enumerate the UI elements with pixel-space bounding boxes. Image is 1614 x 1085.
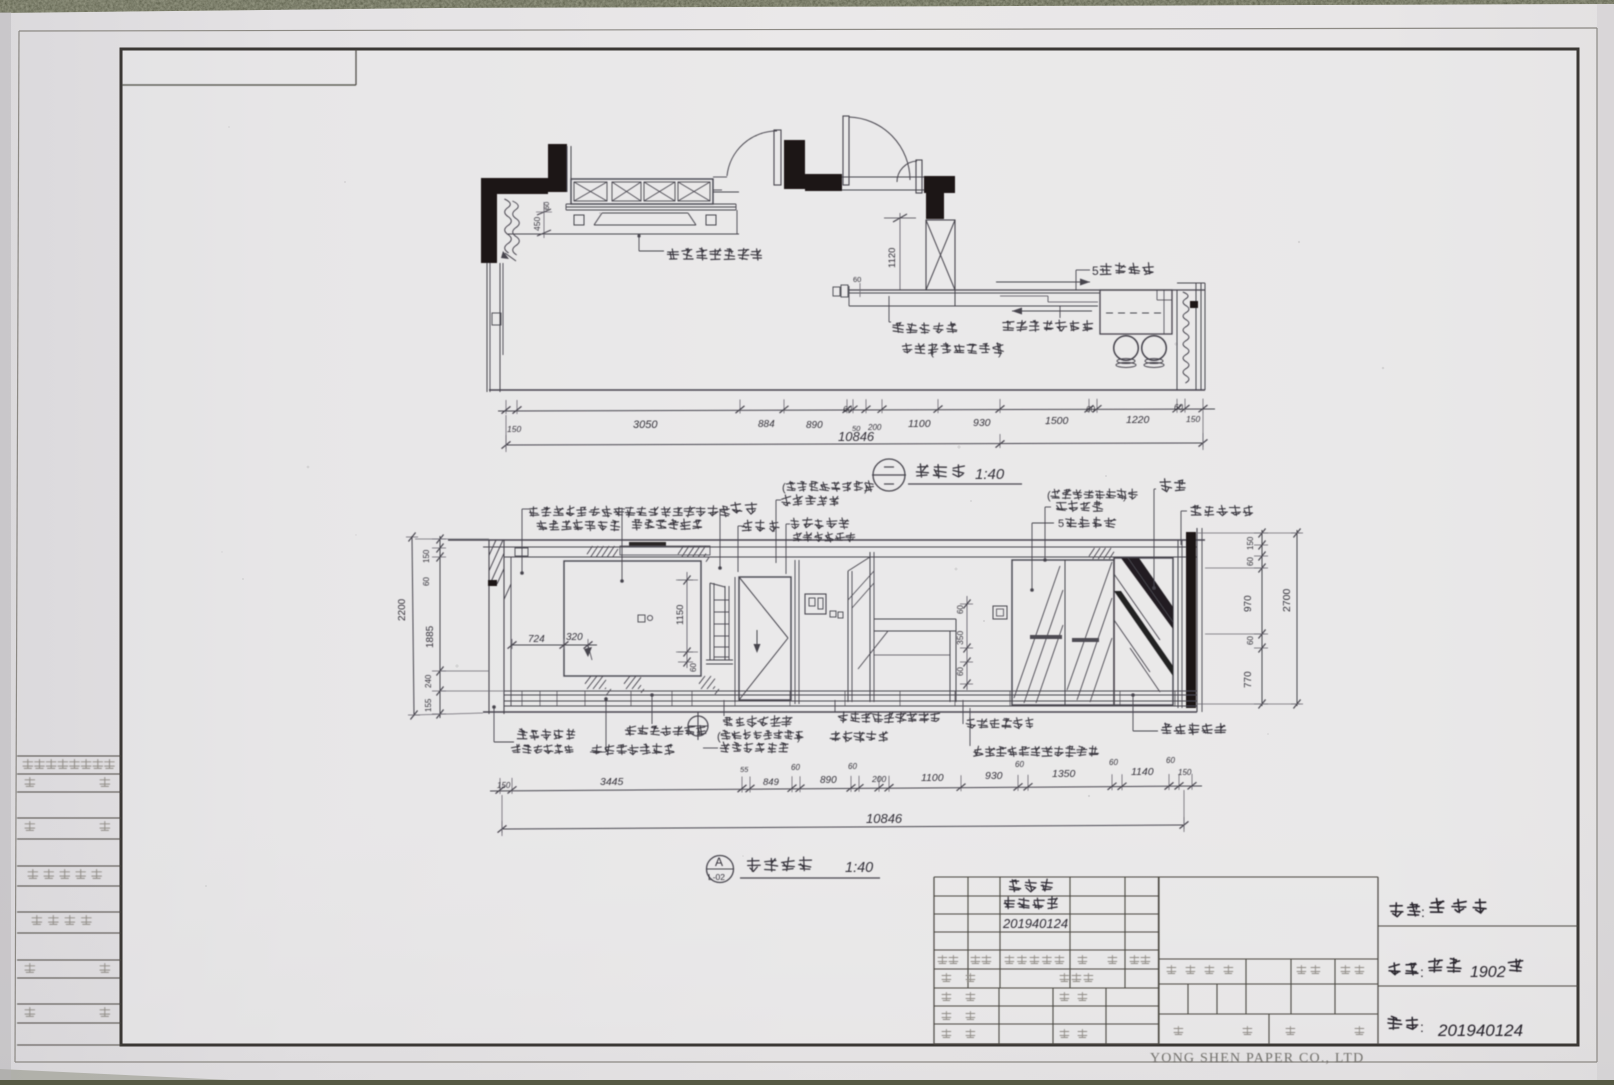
svg-text:970: 970 <box>1243 595 1254 612</box>
svg-text:320: 320 <box>566 632 583 643</box>
svg-text:): ) <box>998 344 1002 358</box>
svg-text:60: 60 <box>843 405 852 414</box>
svg-text:(: ( <box>717 731 721 743</box>
svg-text:450: 450 <box>532 217 542 231</box>
svg-text:5: 5 <box>1058 518 1064 530</box>
svg-text:150: 150 <box>1186 414 1200 424</box>
svg-text:150: 150 <box>422 549 431 563</box>
svg-text:150: 150 <box>507 424 521 434</box>
svg-text:1100: 1100 <box>921 772 944 784</box>
svg-text:60: 60 <box>853 275 861 284</box>
svg-text:): ) <box>797 731 801 743</box>
svg-text:60: 60 <box>1166 756 1175 765</box>
svg-text:1902: 1902 <box>1470 964 1506 981</box>
svg-text:60: 60 <box>542 202 551 210</box>
svg-text:201940124: 201940124 <box>1002 916 1068 931</box>
svg-text:1:40: 1:40 <box>845 860 873 876</box>
svg-text:930: 930 <box>985 770 1003 782</box>
svg-text:60: 60 <box>1246 636 1255 645</box>
svg-text:10846: 10846 <box>866 811 903 826</box>
svg-text:201940124: 201940124 <box>1437 1021 1523 1040</box>
svg-text:60: 60 <box>848 762 857 771</box>
svg-text:350: 350 <box>955 631 965 645</box>
svg-text:1220: 1220 <box>1126 414 1150 426</box>
svg-text:): ) <box>1123 490 1127 502</box>
svg-text:930: 930 <box>973 417 991 429</box>
svg-text:890: 890 <box>820 775 837 786</box>
svg-text:55: 55 <box>740 765 749 774</box>
svg-text:240: 240 <box>424 674 433 688</box>
svg-text:60: 60 <box>956 605 965 614</box>
svg-text:): ) <box>864 482 868 494</box>
svg-text:150: 150 <box>497 781 511 790</box>
svg-text:60: 60 <box>1174 403 1183 412</box>
svg-text:60: 60 <box>422 577 431 586</box>
svg-text::: : <box>1420 1019 1424 1035</box>
svg-text:60: 60 <box>791 763 800 772</box>
svg-text:(: ( <box>782 482 786 494</box>
svg-text:L-02: L-02 <box>708 872 725 882</box>
svg-text:(: ( <box>930 344 934 358</box>
svg-text:60: 60 <box>689 663 698 672</box>
svg-text:(: ( <box>1047 490 1051 502</box>
svg-text:YONG SHEN PAPER CO., LTD: YONG SHEN PAPER CO., LTD <box>1150 1051 1364 1066</box>
svg-text:1350: 1350 <box>1052 768 1076 780</box>
svg-text:A: A <box>715 855 723 869</box>
svg-text:3050: 3050 <box>633 419 658 431</box>
svg-text:1140: 1140 <box>1131 766 1154 778</box>
svg-text:890: 890 <box>806 420 823 431</box>
svg-text:1500: 1500 <box>1045 415 1069 427</box>
svg-text::: : <box>1421 904 1425 920</box>
svg-text:60: 60 <box>1086 405 1095 414</box>
svg-text:1150: 1150 <box>675 605 686 625</box>
svg-text:60: 60 <box>1109 758 1118 767</box>
svg-text:10846: 10846 <box>838 429 875 444</box>
svg-text:884: 884 <box>758 419 775 430</box>
svg-text:3445: 3445 <box>600 776 624 788</box>
svg-text:1885: 1885 <box>425 625 436 648</box>
svg-text:200: 200 <box>871 774 886 784</box>
svg-text::: : <box>1420 964 1424 980</box>
svg-text:1120: 1120 <box>887 248 898 268</box>
svg-text:155: 155 <box>424 698 433 712</box>
svg-text:5: 5 <box>1092 264 1099 278</box>
svg-text:60: 60 <box>1015 760 1024 769</box>
svg-text:724: 724 <box>528 634 545 645</box>
svg-text:849: 849 <box>763 777 780 788</box>
svg-text:1100: 1100 <box>908 418 931 430</box>
svg-text:150: 150 <box>1178 768 1192 777</box>
svg-text:60: 60 <box>1246 557 1255 566</box>
svg-text:770: 770 <box>1243 671 1254 688</box>
svg-text:2200: 2200 <box>397 598 408 621</box>
svg-text:60: 60 <box>956 667 965 676</box>
svg-text:1:40: 1:40 <box>975 466 1005 483</box>
svg-text:150: 150 <box>1246 536 1255 550</box>
svg-text:2700: 2700 <box>1281 588 1293 612</box>
